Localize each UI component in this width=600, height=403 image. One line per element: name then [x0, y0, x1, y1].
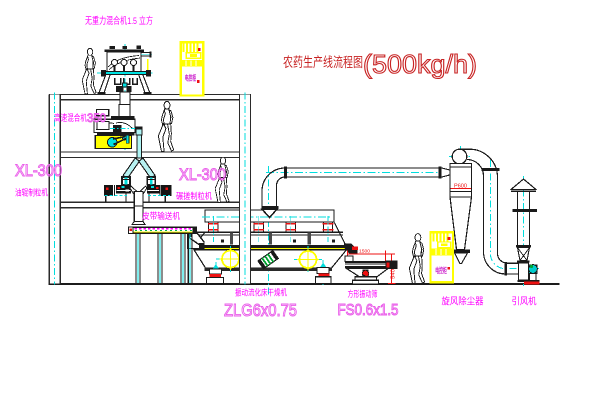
- svg-text:旋风除尘器: 旋风除尘器: [442, 296, 484, 308]
- svg-text:皮带输送机: 皮带输送机: [142, 211, 180, 221]
- svg-text:FS0.6x1.5: FS0.6x1.5: [338, 302, 399, 319]
- svg-text:引风机: 引风机: [512, 296, 537, 308]
- svg-text:XL-300: XL-300: [15, 161, 62, 180]
- svg-text:350: 350: [87, 111, 106, 125]
- svg-text:540: 540: [391, 269, 397, 279]
- svg-text:无重力混合机1.5 立方: 无重力混合机1.5 立方: [85, 15, 153, 27]
- svg-text:高速混合机: 高速混合机: [54, 112, 87, 123]
- svg-text:碾搓制粒机: 碾搓制粒机: [176, 191, 212, 201]
- svg-text:电控柜: 电控柜: [435, 265, 447, 275]
- svg-text:油辊制粒机: 油辊制粒机: [15, 188, 48, 198]
- svg-text:ZLG6x0.75: ZLG6x0.75: [224, 300, 297, 320]
- svg-text:XL-300: XL-300: [179, 165, 226, 184]
- svg-text:农药生产线流程图: 农药生产线流程图: [283, 55, 363, 70]
- svg-text:1500: 1500: [359, 249, 370, 255]
- svg-text:电控柜: 电控柜: [185, 73, 197, 83]
- svg-text:(500kg/h): (500kg/h): [363, 49, 477, 79]
- svg-text:方形振动筛: 方形振动筛: [348, 289, 378, 299]
- svg-text:振动流化床干燥机: 振动流化床干燥机: [235, 288, 287, 298]
